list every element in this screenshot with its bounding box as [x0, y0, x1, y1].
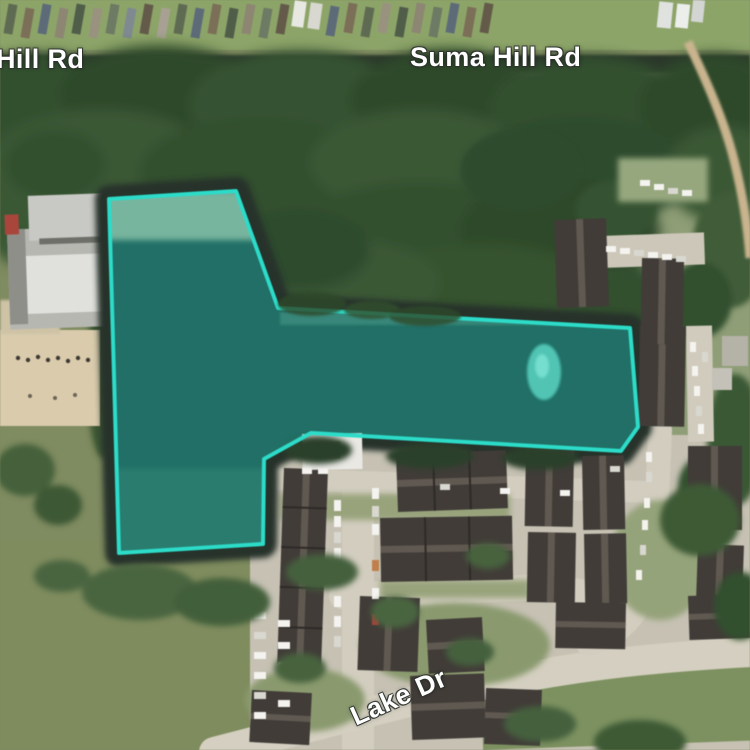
satellite-imagery [0, 0, 750, 750]
satellite-map-canvas[interactable]: Hill Rd Suma Hill Rd Lake Dr [0, 0, 750, 750]
road-label-hill-rd: Hill Rd [0, 44, 84, 75]
road-label-suma-hill-rd: Suma Hill Rd [410, 42, 581, 73]
